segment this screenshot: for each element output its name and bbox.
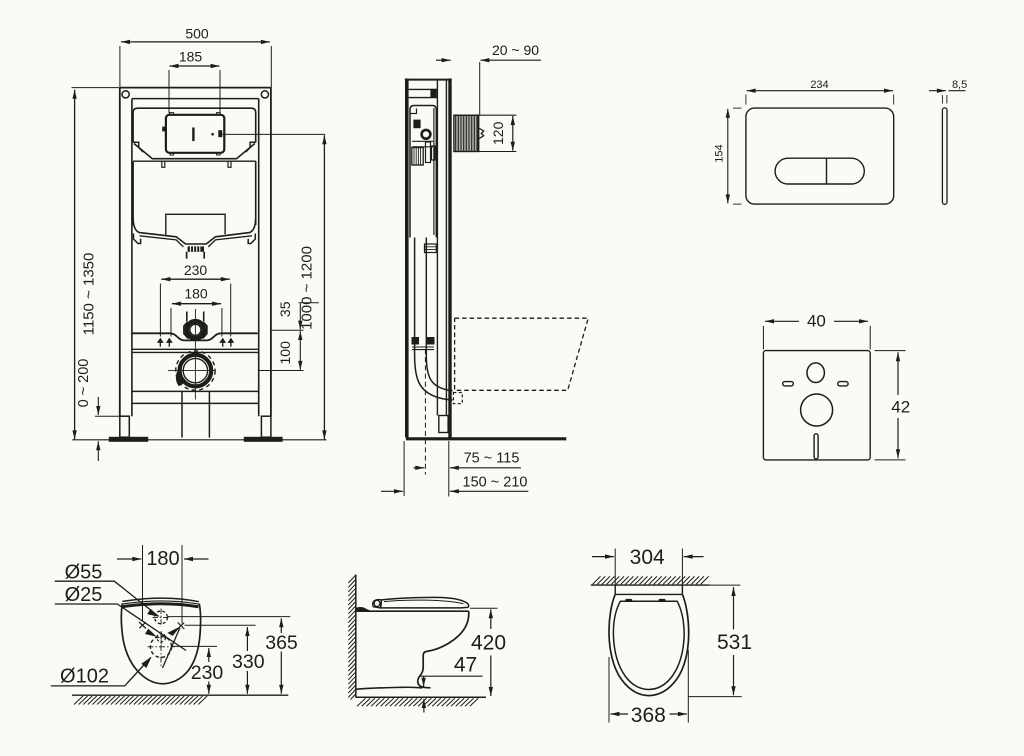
svg-text:230: 230 [184,262,208,278]
svg-text:20 ~ 90: 20 ~ 90 [492,42,539,58]
svg-text:0 ~ 200: 0 ~ 200 [76,359,92,408]
svg-text:234: 234 [810,79,828,91]
svg-text:1150 ~ 1350: 1150 ~ 1350 [81,253,98,336]
svg-text:47: 47 [454,653,477,676]
svg-text:180: 180 [146,548,179,570]
svg-text:185: 185 [179,49,203,65]
svg-text:150 ~ 210: 150 ~ 210 [463,474,528,490]
svg-text:368: 368 [631,704,666,727]
svg-text:40: 40 [807,311,826,330]
svg-text:35: 35 [277,301,293,317]
svg-text:180: 180 [184,286,208,302]
svg-text:230: 230 [191,662,224,684]
svg-text:531: 531 [717,631,752,654]
svg-text:1000 ~ 1200: 1000 ~ 1200 [299,246,316,330]
svg-text:75 ~ 115: 75 ~ 115 [464,450,520,466]
svg-text:365: 365 [265,632,298,654]
svg-text:8,5: 8,5 [952,79,967,91]
svg-text:100: 100 [277,341,293,365]
svg-text:Ø55: Ø55 [65,561,103,583]
svg-text:330: 330 [232,651,265,673]
svg-text:304: 304 [630,546,665,569]
svg-text:42: 42 [891,398,910,417]
svg-text:120: 120 [490,121,506,145]
svg-text:500: 500 [185,26,209,42]
svg-text:420: 420 [471,632,506,655]
svg-text:Ø102: Ø102 [60,666,109,688]
svg-text:Ø25: Ø25 [65,584,103,606]
svg-text:154: 154 [714,144,726,162]
